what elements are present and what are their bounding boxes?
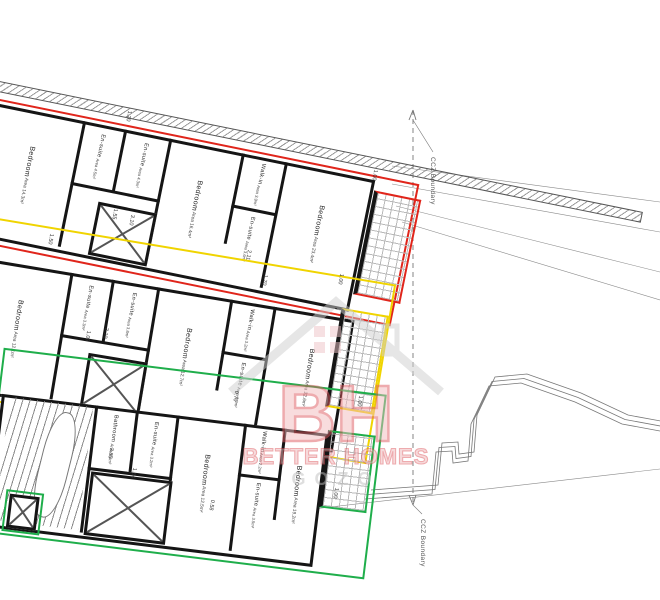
room-label: En-suiteArea 3.2m² (130, 413, 176, 477)
room-label: En-suiteArea 3.5m² (233, 475, 278, 535)
ccz-boundary-label-top: CCZ Boundary (429, 157, 436, 205)
room-label: BathroomArea 4.3m² (90, 408, 136, 472)
ccz-boundary-label-bottom: CCZ Boundary (419, 519, 426, 567)
room-label: Walk-inArea 3.2m² (224, 302, 274, 358)
balcony-terrace (319, 430, 376, 513)
room-label: Walk-inArea 2.2m² (240, 426, 284, 478)
service-shaft (6, 494, 40, 531)
floor-plan-drawing: BedroomArea 14.3m² En-suiteArea 4.5m² En… (0, 0, 660, 600)
lift-shaft (83, 471, 172, 545)
